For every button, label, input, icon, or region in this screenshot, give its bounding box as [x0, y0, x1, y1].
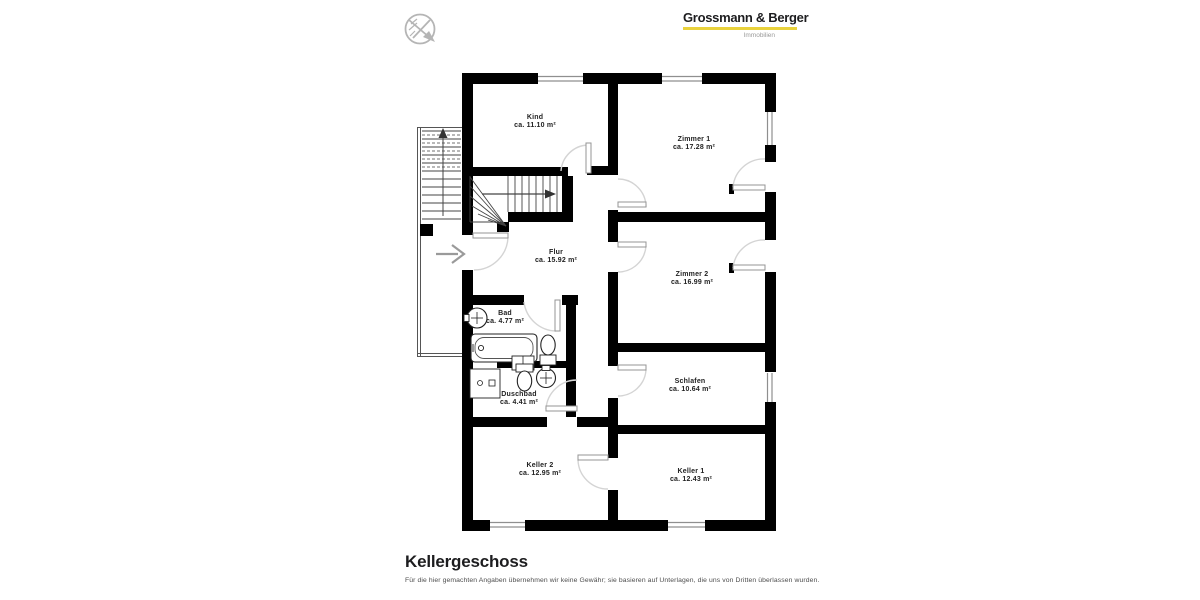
page-title: Kellergeschoss — [405, 552, 805, 572]
exterior-staircase — [417, 127, 462, 357]
logo-accent-rule — [683, 27, 797, 30]
logo-subtitle: Immobilien — [683, 32, 797, 39]
windows — [490, 77, 772, 528]
footer: Kellergeschoss Für die hier gemachten An… — [405, 552, 805, 584]
floor-plan-drawing — [0, 0, 1200, 600]
shower-icon — [470, 369, 500, 398]
door-arcs — [474, 145, 765, 489]
toilet-icon — [540, 335, 556, 365]
floor-plan-page: Grossmann & Berger Immobilien Kind ca. 1… — [0, 0, 1200, 600]
company-logo: Grossmann & Berger Immobilien — [683, 10, 797, 39]
compass-icon — [406, 15, 436, 44]
sink-icon — [537, 366, 556, 388]
disclaimer-text: Für die hier gemachten Angaben übernehme… — [405, 577, 805, 584]
logo-title: Grossmann & Berger — [683, 10, 797, 25]
entrance-arrow-icon — [436, 245, 464, 263]
walls — [420, 73, 776, 531]
fixtures — [464, 308, 556, 398]
toilet-icon — [516, 364, 533, 391]
stair-walkline-arrow-icon — [482, 190, 556, 199]
